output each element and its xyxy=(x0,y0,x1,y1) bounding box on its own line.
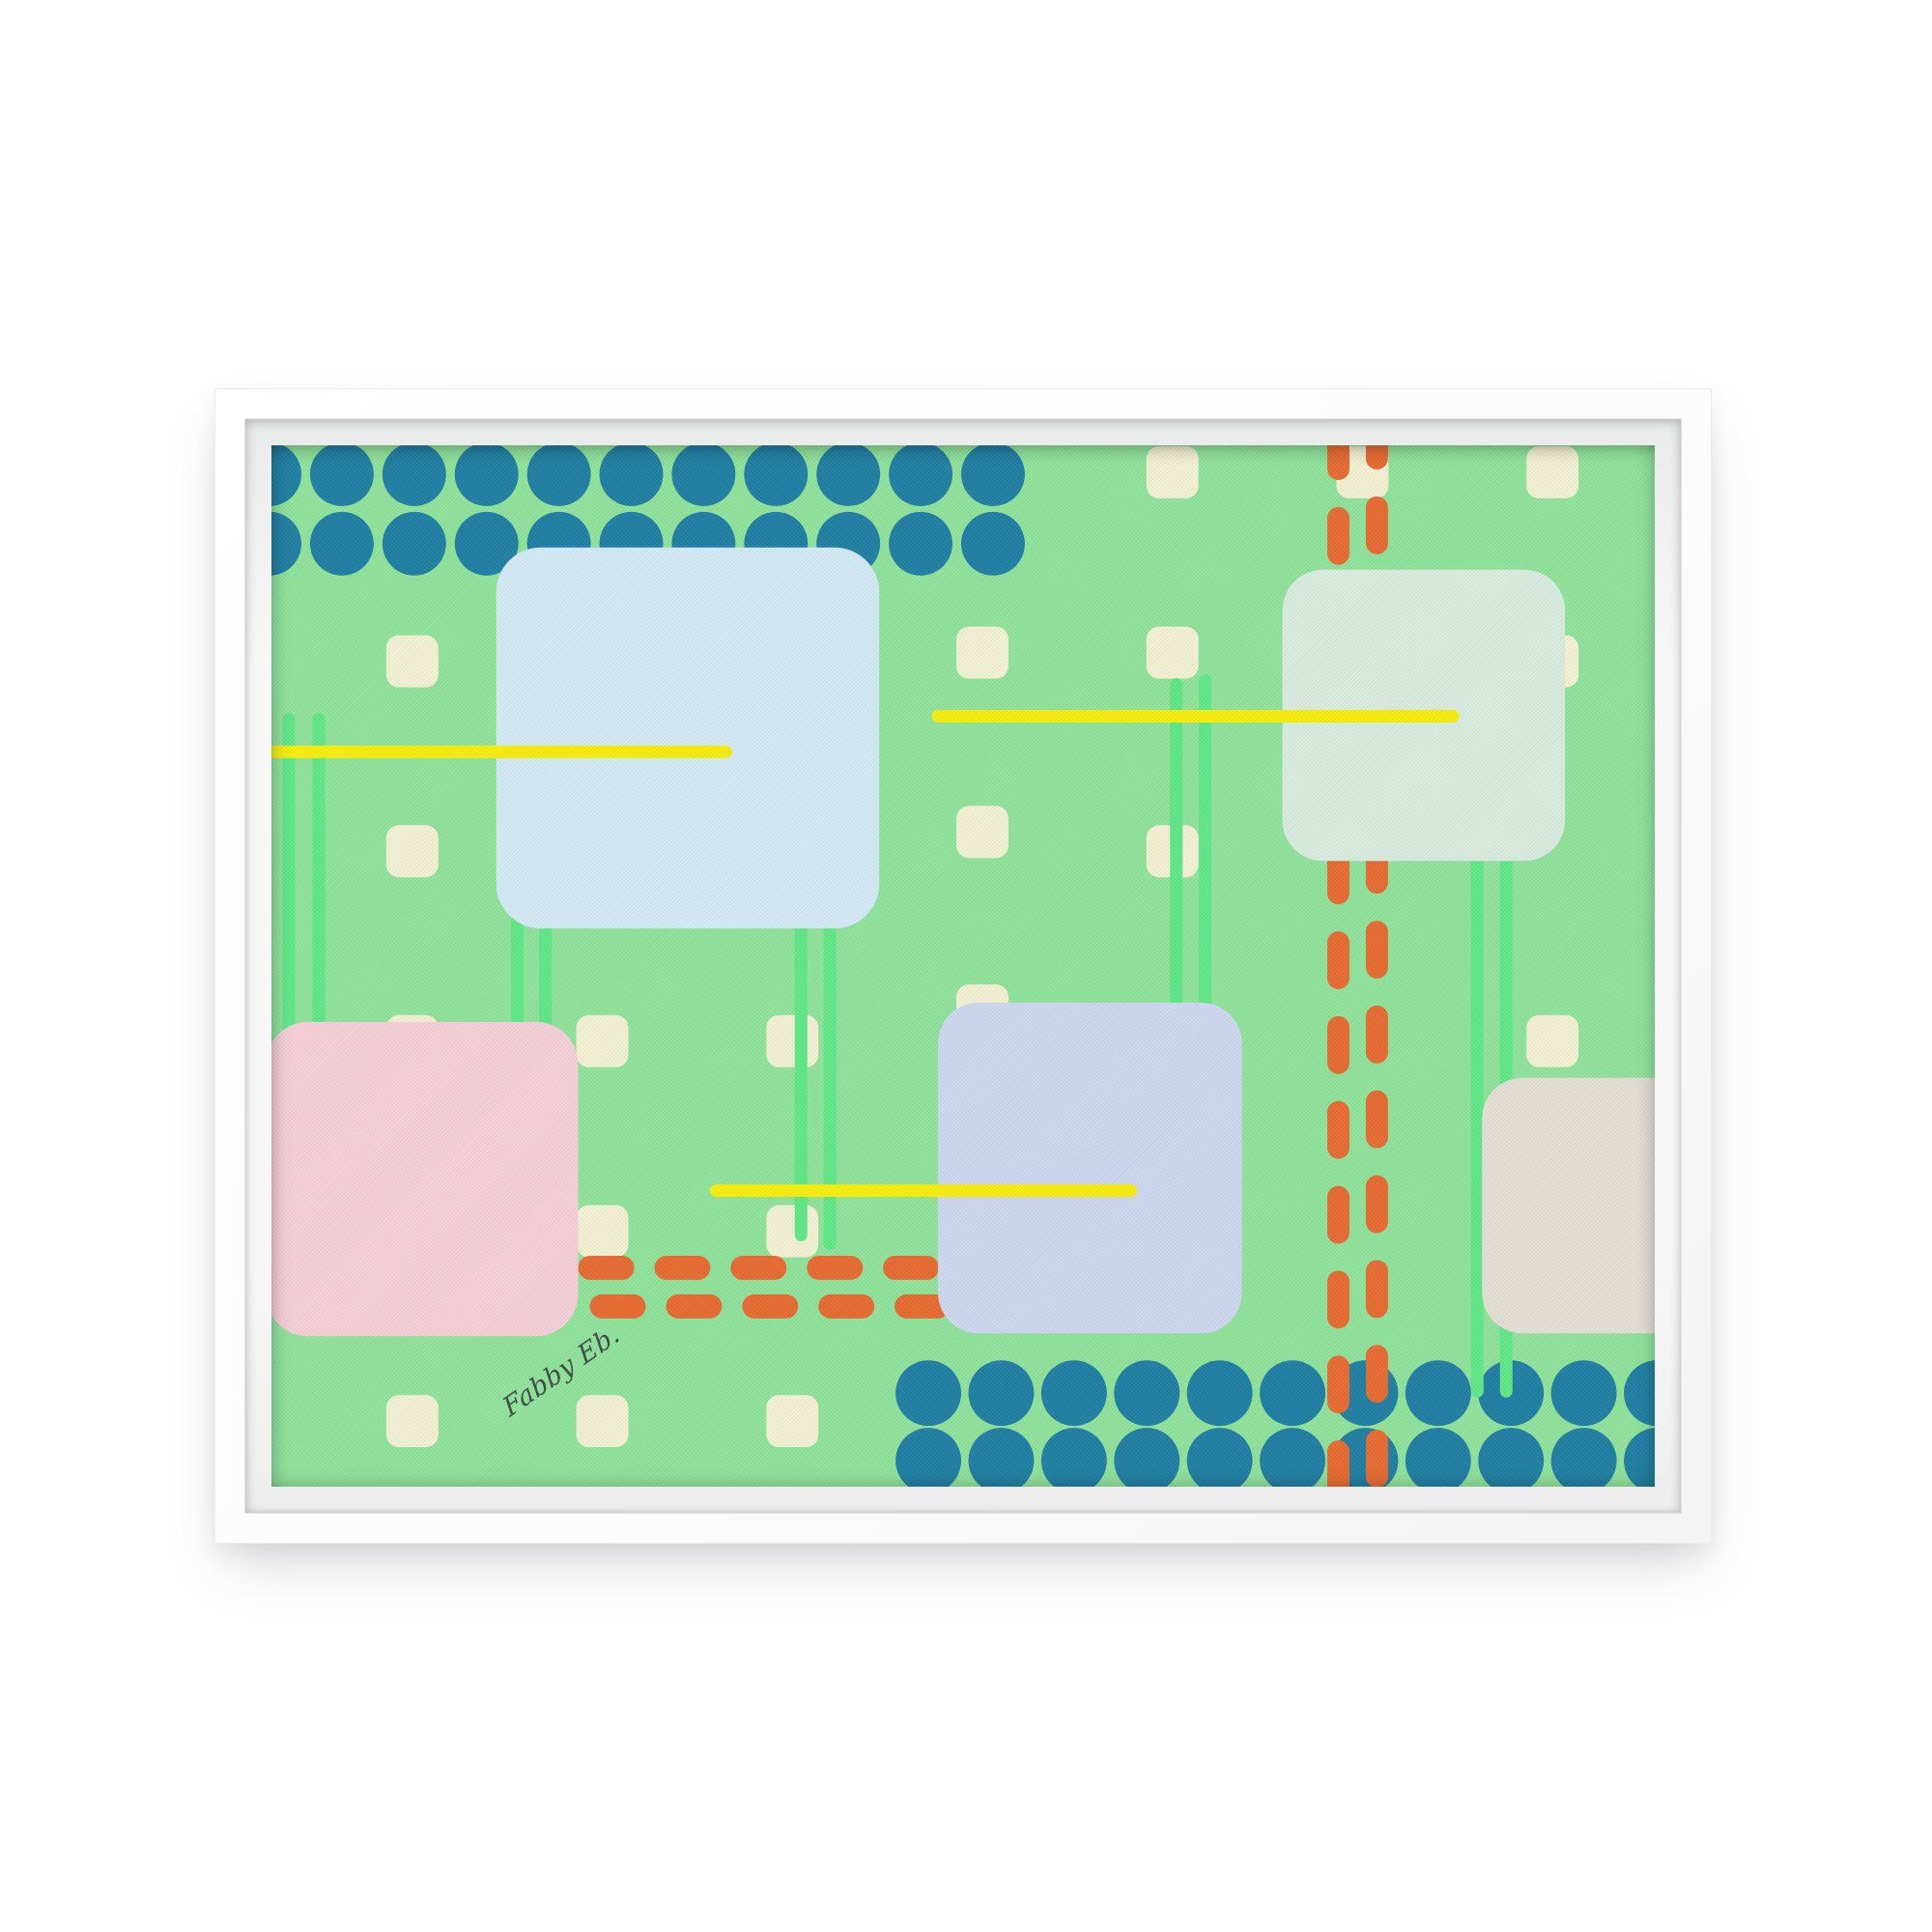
cream-square xyxy=(1526,1015,1578,1067)
cream-square xyxy=(956,806,1009,858)
cream-square xyxy=(766,1015,818,1067)
cream-square xyxy=(766,1395,818,1447)
cream-square xyxy=(1147,627,1199,679)
teal-dot xyxy=(1187,1360,1253,1426)
cream-square xyxy=(386,1395,439,1447)
teal-dot xyxy=(1114,1360,1179,1426)
cream-square xyxy=(386,825,439,877)
teal-dot xyxy=(1551,1360,1617,1426)
teal-dot xyxy=(310,512,374,576)
big-square-lavender xyxy=(938,1003,1242,1333)
canvas-print: Fabby Eb. xyxy=(271,445,1655,1487)
cream-square xyxy=(577,1395,629,1447)
picture-frame: Fabby Eb. xyxy=(214,388,1712,1544)
big-square-beige xyxy=(1482,1078,1655,1334)
teal-dot xyxy=(744,445,808,506)
big-square-sky-blue xyxy=(497,548,879,928)
teal-dot xyxy=(310,445,374,506)
teal-dot xyxy=(1406,1360,1471,1426)
frame-mat-well: Fabby Eb. xyxy=(244,418,1682,1514)
teal-dot xyxy=(889,445,952,506)
teal-dot xyxy=(455,445,519,506)
cream-square xyxy=(766,1206,818,1258)
teal-dot xyxy=(816,445,880,506)
cream-square xyxy=(1526,446,1578,498)
teal-dot xyxy=(895,1360,961,1426)
cream-square xyxy=(956,627,1009,679)
teal-dot xyxy=(1041,1360,1107,1426)
teal-dot xyxy=(527,445,591,506)
teal-dot xyxy=(961,512,1025,576)
cream-square xyxy=(1147,446,1199,498)
cream-square xyxy=(577,1015,629,1067)
teal-dot xyxy=(671,445,735,506)
artwork-svg: Fabby Eb. xyxy=(271,445,1655,1487)
cream-square xyxy=(386,636,439,688)
teal-dot xyxy=(961,445,1025,506)
big-square-pink xyxy=(271,1022,579,1336)
cream-square xyxy=(577,1206,629,1258)
teal-dot xyxy=(1260,1360,1325,1426)
teal-dot xyxy=(383,445,446,506)
teal-dot xyxy=(889,512,952,576)
teal-dot xyxy=(600,445,664,506)
teal-dot xyxy=(383,512,446,576)
teal-dot xyxy=(968,1360,1034,1426)
product-mockup: Fabby Eb. xyxy=(0,0,1932,1932)
